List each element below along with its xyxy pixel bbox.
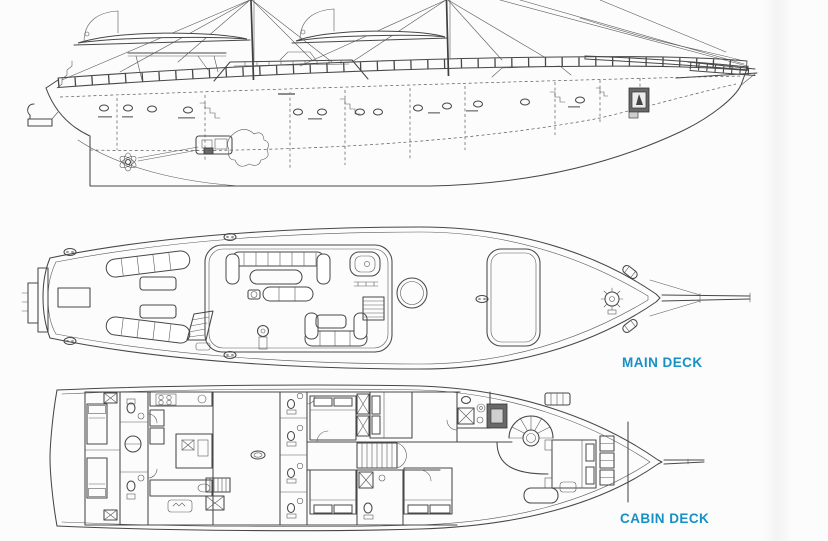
toilet [287,425,303,446]
double-bed [310,470,356,514]
galley-sink [198,395,206,403]
coffee-table [140,277,176,290]
fan-staircase [509,416,553,446]
wardrobe [104,510,117,520]
bowsprit-plan [650,280,750,316]
main-deck-label: MAIN DECK [622,355,703,370]
bowsprit-plan [664,459,704,464]
jacuzzi [397,278,427,308]
crew-bathroom [127,475,144,499]
anchor-windlass [601,288,623,314]
aft-furled-sail [78,33,247,43]
fridge [150,428,164,444]
engine-room-hatch [251,451,265,459]
saloon-sofa-mid [248,287,313,301]
dumbwaiter [487,404,507,428]
vip-bathroom [458,397,483,425]
davit-hook [28,104,34,119]
coffee-table [140,305,176,318]
bow-emblem [629,88,649,118]
vip-cabin [458,393,614,503]
scan-artifact [762,0,792,541]
stern-table [58,288,90,307]
guest-bathrooms [280,393,307,518]
deck-hatch [621,318,639,334]
vip-seat [524,488,558,503]
crew-bathroom [127,399,144,419]
guest-cabins [310,392,452,519]
corridor-staircase [357,443,406,468]
stair-glyph [596,88,608,96]
saloon-sofa-aft [305,313,367,346]
deck-hatch [621,264,639,280]
stern-platform [28,104,58,126]
double-bed [370,392,412,438]
bar-counter [350,252,380,286]
toilet [287,463,303,483]
portholes [98,93,585,120]
crew-bunk [87,404,107,444]
galley-island [176,434,212,468]
aft-corridor-stairs [206,478,230,510]
engine [196,129,268,166]
main-furled-sail [296,31,445,41]
aft-sofa-starboard [105,316,191,344]
main-deck-view [0,198,828,378]
stair-glyph [550,92,565,102]
fore-hatch [545,393,570,405]
cabin-deck-label: CABIN DECK [620,511,709,526]
fridge [150,410,164,426]
galley [150,392,212,512]
bimini-top [128,52,316,80]
saloon-sofa-fwd [226,252,330,284]
toilet [287,393,303,414]
wardrobe [206,496,224,510]
helm-station [258,326,269,350]
toilet [287,498,303,518]
wardrobe [104,393,117,403]
saloon-table-aft [316,315,346,328]
stair-glyph [200,103,220,118]
dinette-table [125,436,141,452]
vip-bed [545,440,596,488]
saloon [187,245,392,352]
yacht-arrangement-drawing: MAIN DECK CABIN DECK [0,0,828,541]
mizzen-mast [251,0,254,80]
side-profile-view [0,0,828,200]
stair-glyph [340,99,360,114]
aft-deck-seating [58,250,191,344]
crew-bunk [87,458,107,498]
crew-quarters [87,393,144,520]
aft-sofa-port [105,250,191,278]
double-bed [404,468,452,514]
vip-lockers [600,436,614,485]
sun-pad [487,249,540,346]
saloon-table [250,270,302,284]
wardrobe [357,416,369,436]
hull-profile [46,61,748,186]
illegible-compartment-labels [98,93,580,120]
double-bed [310,396,356,440]
rigging [62,0,747,80]
wardrobe [357,394,369,414]
ensuite-bathroom [359,472,385,519]
propeller-shaft [138,147,198,161]
propulsion [118,129,268,171]
